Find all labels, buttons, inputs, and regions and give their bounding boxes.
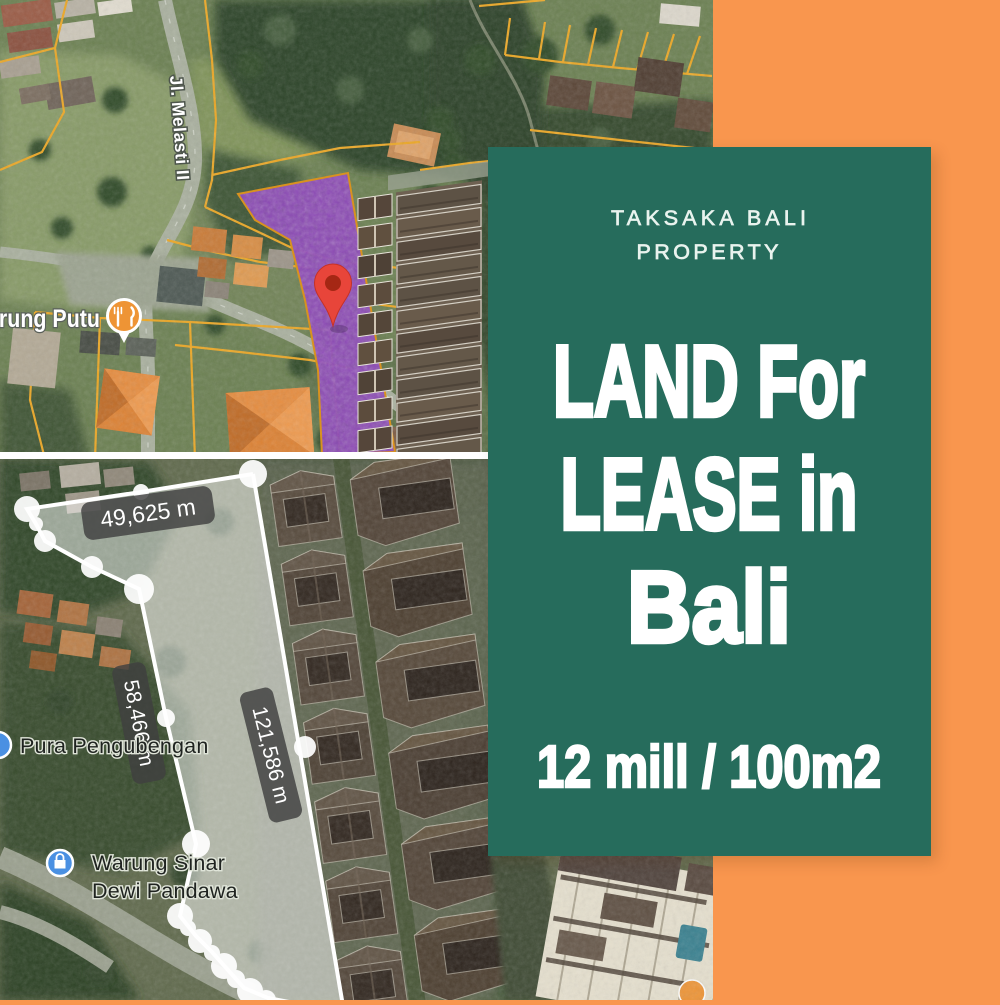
svg-text:LAND For: LAND For — [553, 326, 865, 438]
svg-text:arung Putu: arung Putu — [0, 305, 100, 333]
svg-text:12 mill / 100m2: 12 mill / 100m2 — [537, 734, 881, 800]
svg-text:Pura Pengubengan: Pura Pengubengan — [20, 734, 209, 758]
svg-text:LEASE in: LEASE in — [561, 439, 858, 551]
svg-text:Bali: Bali — [627, 552, 791, 664]
svg-text:TAKSAKA BALI: TAKSAKA BALI — [611, 206, 811, 230]
svg-text:PROPERTY: PROPERTY — [637, 240, 784, 264]
svg-text:Dewi Pandawa: Dewi Pandawa — [92, 879, 238, 903]
svg-text:Warung Sinar: Warung Sinar — [92, 851, 225, 875]
